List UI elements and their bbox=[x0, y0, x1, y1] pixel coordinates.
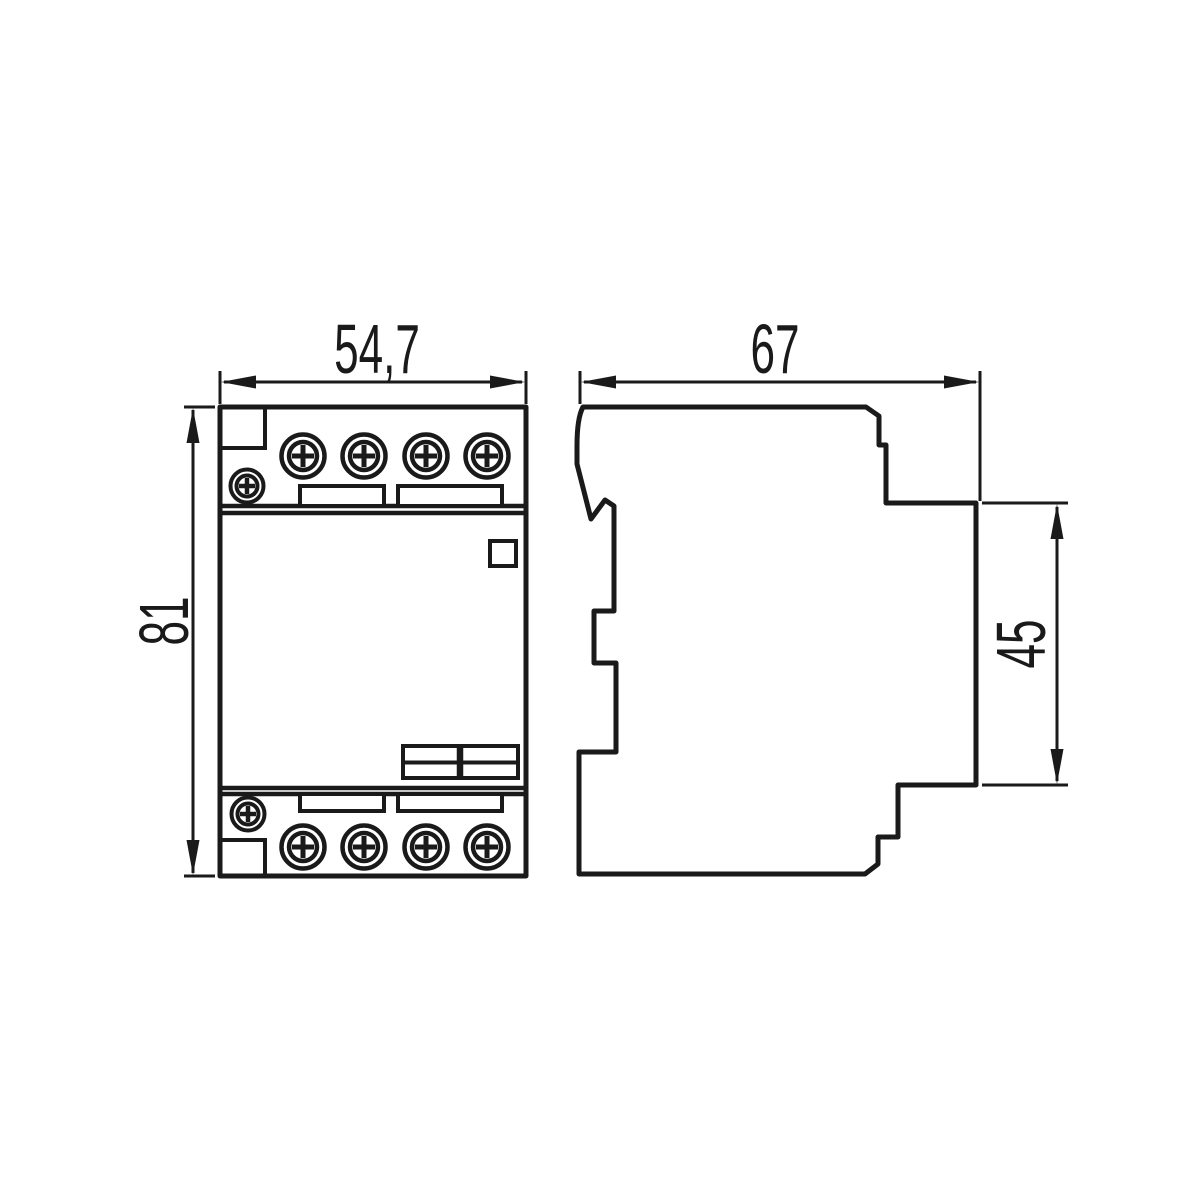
screw-terminal-icon bbox=[466, 826, 509, 869]
screw-terminal-icon bbox=[405, 826, 448, 869]
arrowhead-down-icon bbox=[1051, 749, 1064, 784]
screw-terminal-icon bbox=[282, 435, 325, 478]
arrowhead-up-icon bbox=[187, 408, 200, 443]
dim-front-height: 81 bbox=[126, 407, 215, 876]
dimension-drawing: 54,7 81 67 45 bbox=[0, 0, 1200, 1200]
screw-terminal-icon bbox=[343, 435, 386, 478]
technical-drawing-canvas: 54,7 81 67 45 bbox=[0, 0, 1200, 1200]
dim-label-side-rail-height: 45 bbox=[983, 619, 1061, 668]
screw-terminal-icon bbox=[282, 826, 325, 869]
screw-terminal-icon bbox=[466, 435, 509, 478]
side-view-profile bbox=[577, 407, 976, 874]
dim-side-rail-height: 45 bbox=[982, 503, 1068, 785]
screw-terminal-icon bbox=[405, 435, 448, 478]
terminal-cover-bar bbox=[300, 486, 384, 506]
arrowhead-up-icon bbox=[1051, 504, 1064, 539]
side-view bbox=[577, 407, 976, 874]
dim-label-front-width: 54,7 bbox=[334, 311, 420, 389]
dim-label-front-height: 81 bbox=[126, 596, 204, 645]
front-view bbox=[220, 407, 526, 876]
terminal-cover-bar bbox=[398, 794, 502, 811]
screw-terminal-icon bbox=[232, 798, 265, 831]
dim-label-side-depth: 67 bbox=[750, 311, 799, 389]
terminal-cover-bar bbox=[398, 486, 502, 506]
screw-terminal-icon bbox=[343, 826, 386, 869]
dim-front-width: 54,7 bbox=[220, 311, 526, 404]
arrowhead-down-icon bbox=[187, 840, 200, 875]
arrowhead-left-icon bbox=[581, 376, 616, 389]
terminal-cover-bar bbox=[300, 794, 384, 811]
screw-terminal-icon bbox=[231, 470, 264, 503]
arrowhead-right-icon bbox=[944, 376, 979, 389]
arrowhead-left-icon bbox=[221, 376, 256, 389]
arrowhead-right-icon bbox=[490, 376, 525, 389]
